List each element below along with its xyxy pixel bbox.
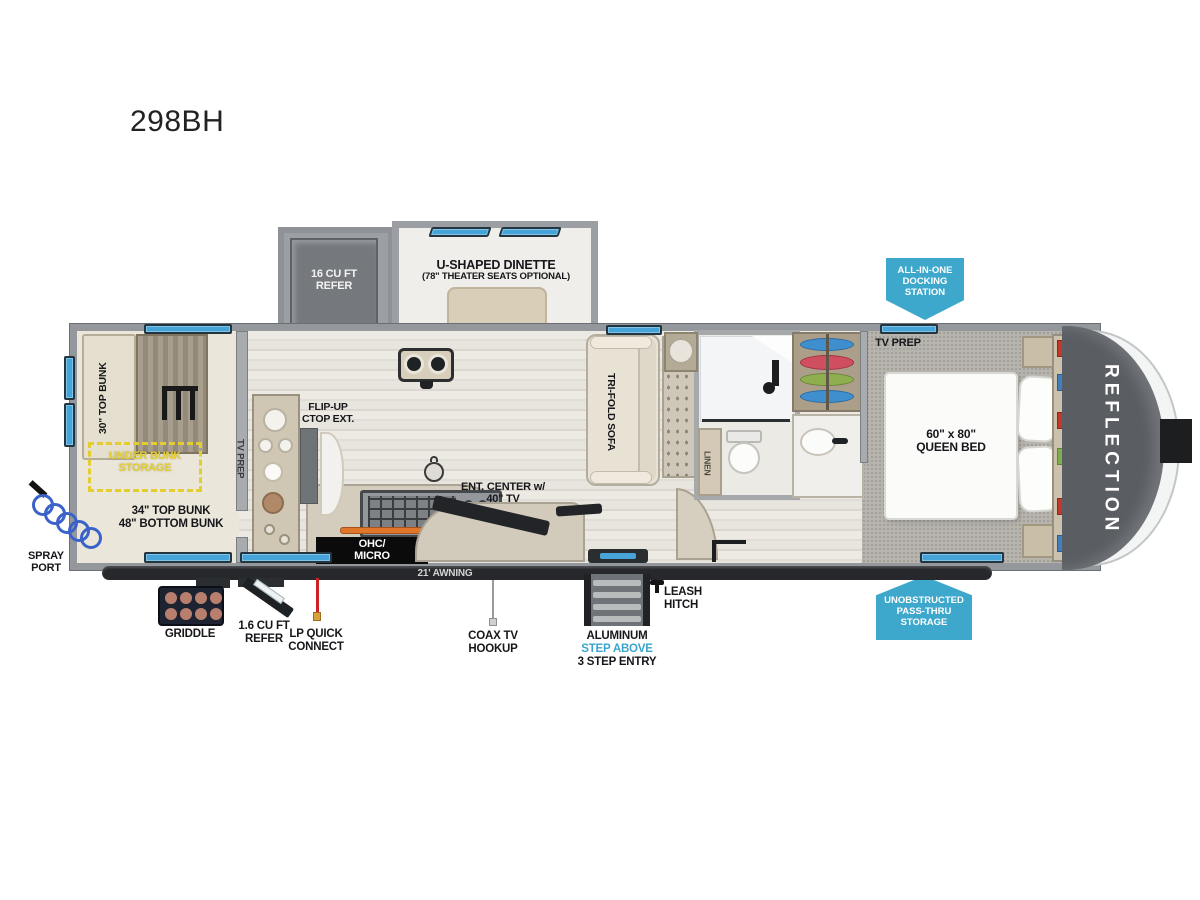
plate-icon [278,438,293,453]
bedroom-divider [860,331,868,463]
toilet-bowl [728,442,760,474]
plate-icon [258,438,273,453]
dinette-title: U-SHAPED DINETTE [402,258,590,272]
spray-port-label: SPRAY PORT [10,550,82,575]
step-tread-icon [593,580,641,586]
reflection-text: REFLECTION [1100,352,1121,548]
floorplan-page: 298BH 16 CU FT REFER U-SHAPED DINETTE (7… [0,0,1200,900]
refer-slide-label: 16 CU FT REFER [292,268,376,293]
griddle-burner-icon [180,608,192,620]
tv-prep-bed-label: TV PREP [866,337,930,349]
window [64,403,75,447]
step-label-2: STEP ABOVE [572,643,662,656]
bunk-30-label: 30" TOP BUNK [98,348,110,448]
bunks-label: 34" TOP BUNK 48" BOTTOM BUNK [96,505,246,531]
sink-bowl-icon [428,354,448,374]
window [240,552,332,563]
griddle-burner-icon [165,608,177,620]
sofa-back [638,338,656,482]
page-title: 298BH [130,105,224,139]
griddle-burner-icon [165,592,177,604]
lp-label: LP QUICK CONNECT [275,628,357,654]
bunk-ladder-icon [162,386,198,420]
step-tread-icon [593,592,641,598]
shower-door-icon [702,419,790,422]
pantry-panel [300,428,318,504]
sofa-label: TRI-FOLD SOFA [604,364,616,459]
coax-label: COAX TV HOOKUP [453,630,533,656]
window [144,552,232,563]
tv-prep-bunk-label: TV PREP [234,424,245,494]
stair-rail-icon [712,540,746,544]
vanity-sink [800,428,836,456]
pass-thru-badge: UNOBSTRUCTED PASS-THRU STORAGE [876,576,972,640]
round-fixture-icon [668,338,694,364]
leash-hitch-icon-post [655,585,659,593]
bed-label: 60" x 80" QUEEN BED [890,428,1012,455]
linen-label: LINEN [702,438,712,488]
coax-line-icon [492,580,494,620]
sink-bowl-icon [404,354,424,374]
docking-station-badge: ALL-IN-ONE DOCKING STATION [886,258,964,320]
window [920,552,1004,563]
knob-icon [279,534,290,545]
step-label-1: ALUMINUM [572,630,662,643]
griddle-burner-icon [195,592,207,604]
window [606,325,662,335]
spray-coil-icon [80,527,102,549]
awning-bar [102,566,992,580]
shower-head-icon [763,382,775,394]
leash-label: LEASH HITCH [664,586,724,612]
window [144,324,232,334]
faucet-icon [420,381,433,389]
hitch-pin [1160,419,1192,463]
window [880,324,938,334]
plate-icon [263,408,287,432]
awning-label: 21' AWNING [400,568,490,579]
stair-rail-icon [712,544,716,562]
lp-line-icon [316,578,319,614]
step-tread-icon [593,616,641,622]
dinette-skylight-right [498,227,561,237]
wardrobe-rod-icon [826,334,829,410]
window [64,356,75,400]
entry-step-tread [600,553,636,559]
dinette-skylight-left [428,227,491,237]
griddle-burner-icon [210,592,222,604]
bowl-icon [262,492,284,514]
under-bunk-label: UNDER BUNK STORAGE [90,450,200,475]
griddle-burner-icon [180,592,192,604]
knob-icon [264,524,275,535]
ohc-micro-label: OHC/ MICRO [316,539,428,562]
flip-up-label: FLIP-UP CTOP EXT. [286,402,370,426]
bath-vanity [792,414,864,498]
kettle-icon [424,462,444,482]
shower-fixture-icon [772,360,779,386]
sofa-armrest [590,336,652,349]
dinette-sub: (78" THEATER SEATS OPTIONAL) [400,272,592,283]
griddle-burner-icon [210,608,222,620]
step-label-3: 3 STEP ENTRY [572,656,662,669]
kettle-handle-icon [430,456,438,462]
griddle-label: GRIDDLE [150,628,230,641]
lp-tip-icon [313,612,321,621]
step-tread-icon [593,604,641,610]
sofa-armrest [590,471,652,484]
plate-icon [263,462,283,482]
coax-plug-icon [489,618,497,626]
griddle-burner-icon [195,608,207,620]
vanity-faucet-icon [832,438,848,444]
